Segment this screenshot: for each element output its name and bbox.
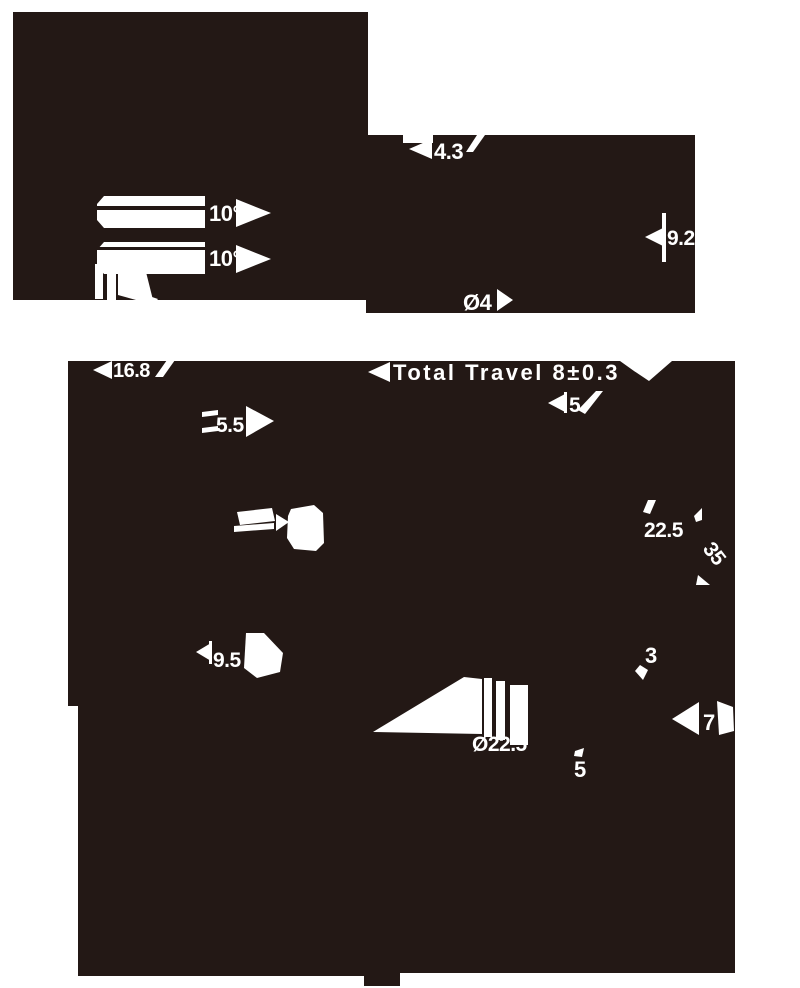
dim-label-body-width: 16.8 bbox=[113, 360, 150, 382]
ink-region-top-right-view bbox=[366, 135, 695, 313]
dim-label-flange-dia: Ø22.5 bbox=[472, 733, 528, 756]
dim-label-side-depth: 22.5 bbox=[644, 519, 684, 542]
plunger-silhouette-top bbox=[97, 196, 205, 228]
terminal-pin-mark-2 bbox=[107, 264, 116, 301]
technical-drawing-page: 10° 10° 4.3 9.2 Ø4 16.8 Total Travel 8±0… bbox=[0, 0, 800, 988]
extension-line-right-height bbox=[662, 213, 666, 262]
plunger-centerline-top bbox=[97, 206, 205, 210]
extension-line-tip-height bbox=[209, 641, 212, 664]
extension-line-upper-offset bbox=[564, 392, 567, 413]
dim-label-tip-width: 5.5 bbox=[216, 414, 245, 437]
tip-assembly-head bbox=[287, 505, 324, 551]
dim-label-right-height: 9.2 bbox=[667, 227, 695, 250]
dim-label-base-height: 7 bbox=[703, 710, 715, 735]
dim-label-tip-height: 9.5 bbox=[213, 649, 242, 672]
terminal-pin-mark-1 bbox=[95, 264, 103, 299]
dim-label-step-height: 3 bbox=[645, 643, 657, 668]
technical-drawing-canvas: 10° 10° 4.3 9.2 Ø4 16.8 Total Travel 8±0… bbox=[0, 0, 800, 988]
flange-pin-mark-1 bbox=[484, 678, 492, 737]
dim-label-upper-offset: 5 bbox=[569, 394, 581, 417]
dim-label-lower-offset: 5 bbox=[574, 757, 586, 782]
dim-label-total-travel: Total Travel 8±0.3 bbox=[393, 360, 617, 385]
dim-label-shaft-dia: Ø4 bbox=[463, 290, 493, 315]
ink-region-main-view bbox=[68, 361, 735, 986]
flange-pin-mark-2 bbox=[496, 681, 505, 740]
plunger-centerline-bottom bbox=[97, 247, 205, 250]
dim-label-top-width: 4.3 bbox=[434, 139, 463, 164]
